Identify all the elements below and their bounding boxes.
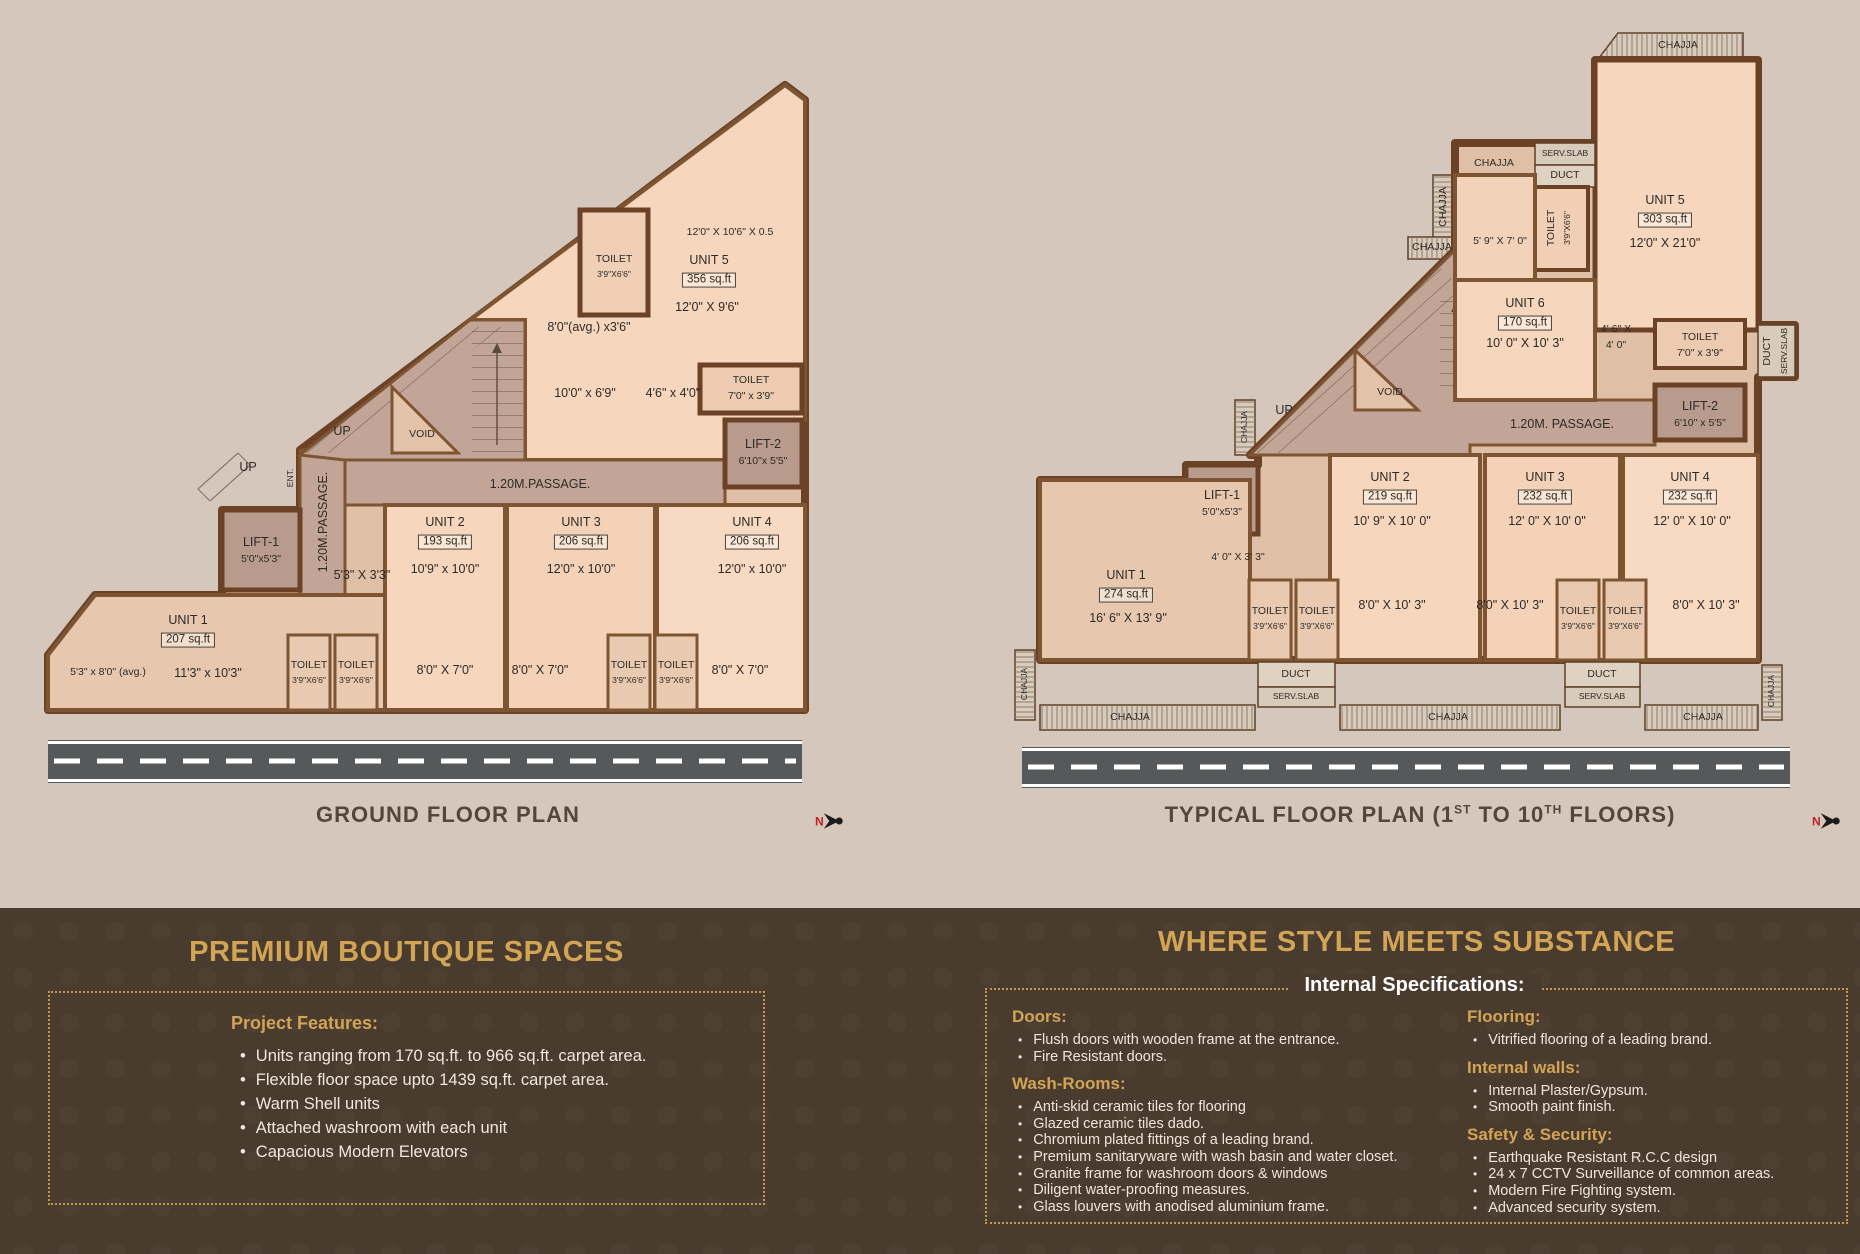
chajja-label: CHAJJA (1428, 712, 1468, 724)
unit5-name: UNIT 5 (689, 253, 728, 267)
unit2-area: 219 sq.ft (1363, 490, 1417, 505)
typical-floor-plan: CHAJJA UNIT 5 303 sq.ft 12'0" X 21'0" SE… (1000, 25, 1820, 795)
features-box: Project Features: Units ranging from 170… (48, 991, 765, 1205)
road (1022, 747, 1790, 788)
spec-item: Fire Resistant doors. (1018, 1049, 1442, 1066)
north-compass-icon: N (815, 799, 859, 843)
toilet-room (1249, 580, 1291, 660)
unit1-area: 274 sq.ft (1099, 588, 1153, 603)
specs-column-left: Doors: Flush doors with wooden frame at … (1012, 998, 1442, 1215)
serv-slab-label: SERV.SLAB (1579, 692, 1625, 702)
dim-label: 8'0" X 7'0" (417, 663, 474, 677)
features-heading: Project Features: (231, 1013, 763, 1034)
specs-column-right: Flooring: Vitrified flooring of a leadin… (1467, 998, 1837, 1216)
toilet-size-label: 3'9"X6'6" (1563, 211, 1573, 245)
unit1-dim: 16' 6" X 13' 9" (1089, 611, 1167, 625)
spec-list: Anti-skid ceramic tiles for flooringGlaz… (1012, 1099, 1442, 1215)
dim-label: 4' 0" (1606, 340, 1626, 352)
lift1-name: LIFT-1 (243, 535, 279, 549)
toilet-room (288, 635, 330, 710)
duct-label: DUCT (1550, 170, 1579, 182)
unit4-area: 232 sq.ft (1663, 490, 1717, 505)
ground-plan-title: GROUND FLOOR PLAN (148, 802, 748, 828)
toilet-label: TOILET (291, 660, 328, 672)
feature-item: Capacious Modern Elevators (240, 1140, 763, 1164)
toilet-size-label: 3'9"X6'6" (1253, 622, 1287, 632)
lift1-name: LIFT-1 (1204, 488, 1240, 502)
dim-label: 5' 9'' X 7' 0" (1473, 236, 1527, 248)
toilet-room (1557, 580, 1599, 660)
features-list: Units ranging from 170 sq.ft. to 966 sq.… (50, 1044, 763, 1164)
spec-item: Flush doors with wooden frame at the ent… (1018, 1032, 1442, 1049)
spec-item: Premium sanitaryware with wash basin and… (1018, 1149, 1442, 1166)
unit4-name: UNIT 4 (732, 515, 771, 529)
up-label: UP (1275, 403, 1292, 417)
floor-plans-area: 12'0" X 10'6" X 0.5 TOILET 3'9"X6'6" UNI… (0, 0, 1860, 908)
spec-group-heading: Safety & Security: (1467, 1125, 1837, 1145)
toilet-label: TOILET (1299, 606, 1336, 618)
toilet-label: TOILET (733, 375, 770, 387)
unit5-dim: 12'0" X 9'6" (675, 300, 739, 314)
passage-label-vertical: 1.20M.PASSAGE. (316, 472, 330, 573)
spec-group-heading: Doors: (1012, 1007, 1442, 1027)
spec-item: Glazed ceramic tiles dado. (1018, 1116, 1442, 1133)
feature-item: Warm Shell units (240, 1092, 763, 1116)
unit5-area: 303 sq.ft (1638, 213, 1692, 228)
dim-label: 4' 0" X 3' 3" (1211, 552, 1265, 564)
unit5-name: UNIT 5 (1645, 193, 1684, 207)
spec-item: 24 x 7 CCTV Surveillance of common areas… (1473, 1166, 1837, 1183)
toilet-room-mid (1655, 320, 1745, 368)
info-section: PREMIUM BOUTIQUE SPACES Project Features… (0, 908, 1860, 1254)
room-5-9 (1455, 175, 1535, 280)
up-label: UP (239, 460, 256, 474)
unit5-dim: 12'0" X 21'0" (1630, 236, 1701, 250)
spec-item: Diligent water-proofing measures. (1018, 1182, 1442, 1199)
spec-list: Internal Plaster/Gypsum.Smooth paint fin… (1467, 1083, 1837, 1116)
spec-list: Earthquake Resistant R.C.C design24 x 7 … (1467, 1150, 1837, 1216)
lift1-room (222, 510, 300, 590)
road (48, 740, 802, 783)
serv-slab-label: SERV.SLAB (1780, 328, 1790, 374)
unit5-area: 356 sq.ft (682, 273, 736, 288)
toilet-size-label: 3'9"X6'6" (1300, 622, 1334, 632)
toilet-label: TOILET (338, 660, 375, 672)
spec-item: Earthquake Resistant R.C.C design (1473, 1150, 1837, 1167)
void-label: VOID (1377, 387, 1403, 399)
dim-label: 8'0" X 7'0" (512, 663, 569, 677)
unit6-name: UNIT 6 (1505, 296, 1544, 310)
unit3-area: 232 sq.ft (1518, 490, 1572, 505)
chajja-label: CHAJJA (1658, 40, 1698, 52)
north-letter: N (1812, 814, 1821, 828)
ground-floor-plan: 12'0" X 10'6" X 0.5 TOILET 3'9"X6'6" UNI… (40, 55, 820, 795)
specs-title: WHERE STYLE MEETS SUBSTANCE (985, 926, 1848, 959)
up-label: UP (333, 424, 350, 438)
void-label: VOID (409, 429, 435, 441)
dim-label: 8'0" X 10' 3" (1672, 598, 1739, 612)
toilet-label: TOILET (1252, 606, 1289, 618)
north-letter: N (815, 814, 824, 828)
unit4-area: 206 sq.ft (725, 535, 779, 550)
chajja-label: CHAJJA (1240, 411, 1250, 443)
ground-floor-plan-drawing (40, 55, 820, 795)
toilet-label: TOILET (1560, 606, 1597, 618)
spec-item: Granite frame for washroom doors & windo… (1018, 1166, 1442, 1183)
unit1-name: UNIT 1 (1106, 568, 1145, 582)
lift2-size: 6'10"x 5'5" (739, 456, 788, 468)
spec-group-heading: Internal walls: (1467, 1058, 1837, 1078)
toilet-size-label: 7'0" x 3'9" (728, 391, 774, 403)
dim-label: 5'3" x 8'0" (avg.) (70, 667, 146, 679)
dim-label: 12'0" X 10'6" X 0.5 (687, 227, 774, 239)
unit1-name: UNIT 1 (168, 613, 207, 627)
unit2-room (1330, 455, 1480, 660)
lift1-size: 5'0"x5'3" (1202, 507, 1242, 519)
toilet-label: TOILET (611, 660, 648, 672)
spec-list: Flush doors with wooden frame at the ent… (1012, 1032, 1442, 1065)
duct-label: DUCT (1281, 669, 1310, 681)
lift2-size: 6'10" x 5'5" (1674, 418, 1726, 430)
unit2-name: UNIT 2 (1370, 470, 1409, 484)
duct-label: DUCT (1762, 336, 1774, 365)
brochure-page: 12'0" X 10'6" X 0.5 TOILET 3'9"X6'6" UNI… (0, 0, 1860, 1254)
toilet-size-label: 3'9"X6'6" (612, 676, 646, 686)
spec-group-heading: Flooring: (1467, 1007, 1837, 1027)
unit1-area: 207 sq.ft (161, 633, 215, 648)
toilet-size-label: 3'9"X6'6" (1608, 622, 1642, 632)
serv-slab-label: SERV.SLAB (1273, 692, 1319, 702)
features-title: PREMIUM BOUTIQUE SPACES (48, 936, 765, 969)
chajja-label: CHAJJA (1110, 712, 1150, 724)
unit6-area: 170 sq.ft (1498, 316, 1552, 331)
feature-item: Units ranging from 170 sq.ft. to 966 sq.… (240, 1044, 763, 1068)
passage-label: 1.20M.PASSAGE. (490, 477, 591, 491)
specs-heading: Internal Specifications: (985, 974, 1844, 997)
feature-item: Attached washroom with each unit (240, 1116, 763, 1140)
lift2-room (725, 420, 802, 487)
unit2-dim: 10' 9" X 10' 0" (1353, 514, 1431, 528)
toilet-label: TOILET (1607, 606, 1644, 618)
unit6-dim: 10' 0" X 10' 3" (1486, 336, 1564, 350)
dim-label: 10'0" x 6'9" (554, 386, 616, 400)
unit3-area: 206 sq.ft (554, 535, 608, 550)
dim-label: 8'0" X 10' 3" (1358, 598, 1425, 612)
unit4-name: UNIT 4 (1670, 470, 1709, 484)
toilet-size-label: 3'9"X6'6" (659, 676, 693, 686)
spec-item: Smooth paint finish. (1473, 1099, 1837, 1116)
unit4-dim: 12'0" x 10'0" (718, 562, 787, 576)
toilet-room (608, 635, 650, 710)
unit2-area: 193 sq.ft (418, 535, 472, 550)
toilet-room (335, 635, 377, 710)
unit2-dim: 10'9" x 10'0" (411, 562, 480, 576)
dim-label: 4' 6" X (1601, 324, 1631, 336)
unit3-dim: 12'0" x 10'0" (547, 562, 616, 576)
toilet-label: TOILET (658, 660, 695, 672)
toilet-room-right (700, 365, 802, 413)
north-compass-icon: N (1812, 799, 1856, 843)
unit3-name: UNIT 3 (1525, 470, 1564, 484)
spec-item: Chromium plated fittings of a leading br… (1018, 1132, 1442, 1149)
toilet-room (1296, 580, 1338, 660)
toilet-room (655, 635, 697, 710)
spec-item: Advanced security system. (1473, 1200, 1837, 1217)
toilet-label: TOILET (1546, 210, 1558, 247)
dim-label: 8'0"(avg.) x3'6" (547, 320, 630, 334)
dim-label: 4'6" x 4'0" (646, 386, 701, 400)
spec-group-heading: Wash-Rooms: (1012, 1074, 1442, 1094)
toilet-size-label: 7'0" x 3'9" (1677, 348, 1723, 360)
unit2-name: UNIT 2 (425, 515, 464, 529)
toilet-size-label: 3'9"X6'6" (339, 676, 373, 686)
duct-label: DUCT (1587, 669, 1616, 681)
chajja-label: CHAJJA (1020, 668, 1030, 700)
passage-label: 1.20M. PASSAGE. (1510, 417, 1614, 431)
specs-box: Doors: Flush doors with wooden frame at … (985, 988, 1848, 1224)
chajja-label: CHAJJA (1438, 187, 1450, 227)
lift1-size: 5'0"x5'3" (241, 554, 281, 566)
toilet-label: TOILET (596, 254, 633, 266)
lift2-name: LIFT-2 (1682, 399, 1718, 413)
dim-label: 5'3" X 3'3" (334, 568, 391, 582)
spec-item: Modern Fire Fighting system. (1473, 1183, 1837, 1200)
chajja-label: CHAJJA (1412, 242, 1452, 254)
unit1-dim: 11'3" x 10'3" (174, 666, 242, 680)
spec-item: Anti-skid ceramic tiles for flooring (1018, 1099, 1442, 1116)
toilet-label: TOILET (1682, 332, 1719, 344)
chajja-label: CHAJJA (1767, 675, 1777, 707)
lift2-name: LIFT-2 (745, 437, 781, 451)
chajja-label: CHAJJA (1683, 712, 1723, 724)
toilet-size-label: 3'9"X6'6" (1561, 622, 1595, 632)
unit3-name: UNIT 3 (561, 515, 600, 529)
toilet-room (1604, 580, 1646, 660)
unit3-dim: 12' 0" X 10' 0" (1508, 514, 1586, 528)
unit4-dim: 12' 0" X 10' 0" (1653, 514, 1731, 528)
feature-item: Flexible floor space upto 1439 sq.ft. ca… (240, 1068, 763, 1092)
chajja-label: CHAJJA (1474, 158, 1514, 170)
toilet-size-label: 3'9"X6'6" (597, 270, 631, 280)
spec-item: Glass louvers with anodised aluminium fr… (1018, 1199, 1442, 1216)
typical-plan-title: TYPICAL FLOOR PLAN (1ST TO 10TH FLOORS) (1120, 802, 1720, 828)
serv-slab-label: SERV.SLAB (1542, 149, 1588, 159)
toilet-size-label: 3'9"X6'6" (292, 676, 326, 686)
dim-label: 8'0" X 7'0" (712, 663, 769, 677)
spec-list: Vitrified flooring of a leading brand. (1467, 1032, 1837, 1049)
spec-item: Vitrified flooring of a leading brand. (1473, 1032, 1837, 1049)
dim-label: 8'0" X 10' 3" (1476, 598, 1543, 612)
entrance-label: ENT. (286, 469, 296, 487)
spec-item: Internal Plaster/Gypsum. (1473, 1083, 1837, 1100)
